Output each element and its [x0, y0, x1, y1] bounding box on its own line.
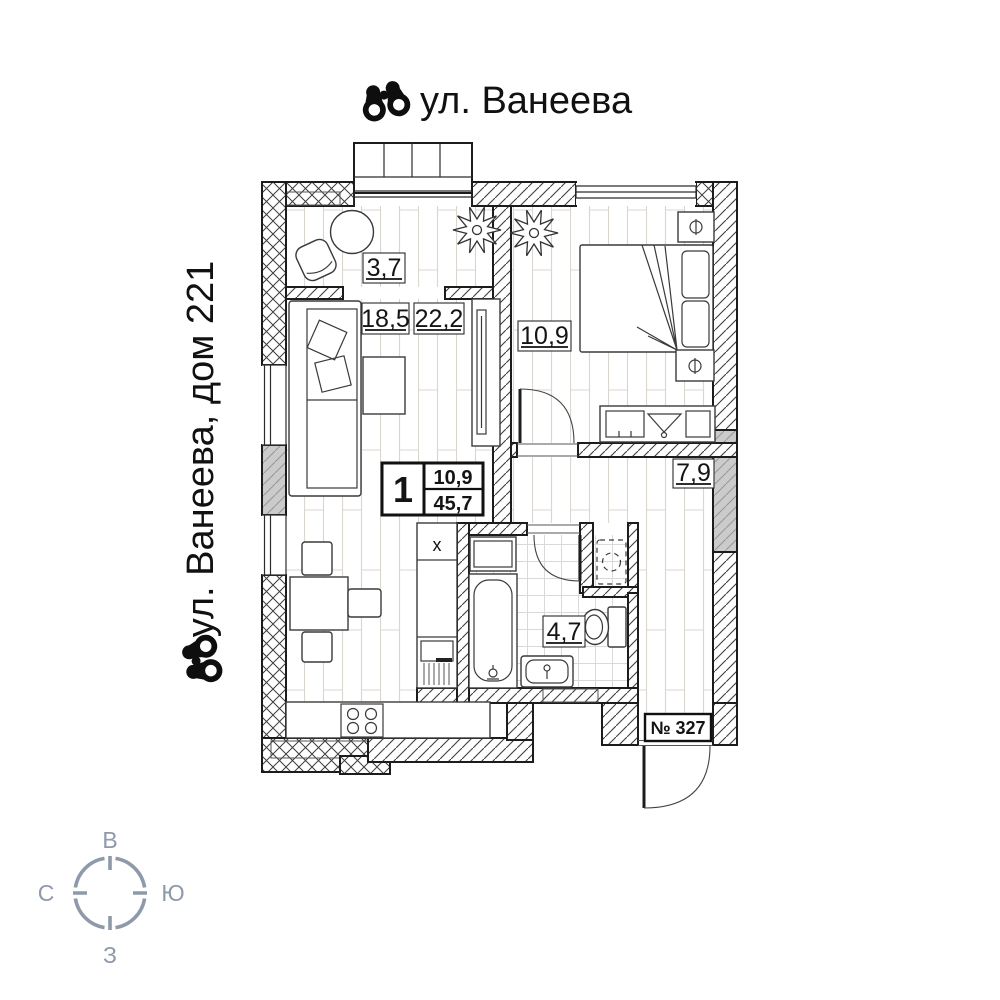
area-label-bedroom: 10,9 [518, 321, 571, 351]
top-street-title: ул. Ванеева [358, 78, 633, 123]
svg-text:7,9: 7,9 [676, 459, 711, 487]
bathtub [469, 574, 517, 688]
rooms-count: 1 [393, 469, 413, 510]
floor-plan-page: x [0, 0, 1000, 1000]
wall-segment [713, 703, 737, 745]
apartment-info-box: 1 10,9 45,7 [382, 463, 483, 515]
kitchen-counter-column: x [417, 523, 457, 688]
bedroom-window [576, 183, 696, 205]
wall-segment [262, 182, 286, 365]
binoculars-icon [358, 78, 412, 123]
kitchen-sink-mark: x [433, 535, 442, 555]
nightstand [678, 212, 714, 242]
left-window-2 [262, 515, 286, 575]
compass-letter-left: С [38, 880, 55, 906]
area-label-bathroom: 4,7 [543, 616, 585, 647]
dining-table [290, 577, 348, 630]
wall-segment [507, 700, 533, 740]
total-area-value: 45,7 [434, 493, 473, 515]
wall-segment [628, 593, 638, 688]
balcony-bay-window [354, 143, 472, 206]
svg-text:ул. Ванеева: ул. Ванеева [420, 80, 633, 122]
compass: В Ю З С [38, 827, 185, 968]
sofa [289, 301, 361, 496]
svg-text:ул. Ванеева, дом 221: ул. Ванеева, дом 221 [180, 261, 222, 638]
dining-chair [348, 589, 381, 617]
wall-segment [713, 552, 737, 703]
wall-segment [368, 738, 533, 762]
binoculars-icon [179, 633, 224, 687]
svg-text:3,7: 3,7 [367, 254, 402, 282]
coffee-table [363, 357, 405, 414]
living-area-value: 10,9 [434, 467, 473, 489]
side-building-title: ул. Ванеева, дом 221 [179, 261, 224, 687]
dresser [600, 406, 715, 442]
dining-chair [302, 632, 332, 662]
toilet [582, 607, 627, 647]
apartment-number-label: № 327 [645, 714, 711, 741]
wall-segment [713, 182, 737, 430]
passage-floor [511, 457, 634, 523]
wall-segment [628, 523, 638, 593]
tv-console [472, 299, 500, 446]
entrance-door [638, 741, 713, 809]
area-label-living: 18,5 [361, 303, 410, 334]
wall-segment [578, 443, 737, 457]
bath-cabinet [470, 537, 516, 571]
floor-plan-canvas: x [0, 0, 1000, 1000]
double-bed [580, 245, 713, 352]
svg-text:10,9: 10,9 [520, 322, 569, 350]
wall-segment [286, 287, 343, 299]
wall-segment [511, 443, 517, 457]
svg-text:18,5: 18,5 [361, 305, 410, 333]
nightstand [676, 350, 714, 381]
compass-letter-right: Ю [161, 880, 184, 906]
svg-text:№ 327: № 327 [650, 718, 705, 738]
dining-chair [302, 542, 332, 575]
area-label-hallway: 7,9 [673, 459, 714, 488]
round-table [331, 211, 374, 254]
wall-segment [417, 688, 638, 703]
wall-segment [602, 703, 638, 745]
compass-letter-bottom: З [103, 942, 117, 968]
compass-letter-top: В [102, 827, 117, 853]
washbasin [521, 656, 573, 687]
kitchen-bottom-counter [286, 702, 490, 738]
wall-segment [472, 182, 576, 206]
area-label-balcony: 3,7 [363, 253, 405, 283]
svg-text:4,7: 4,7 [547, 618, 582, 646]
wall-segment [457, 523, 469, 703]
wall-segment [262, 445, 286, 515]
svg-text:22,2: 22,2 [415, 305, 464, 333]
washer-niche-floor [593, 535, 628, 587]
wall-segment [580, 523, 593, 593]
area-label-kitchen-living: 22,2 [414, 303, 464, 334]
left-window-1 [262, 365, 286, 445]
hallway-floor [634, 457, 713, 740]
